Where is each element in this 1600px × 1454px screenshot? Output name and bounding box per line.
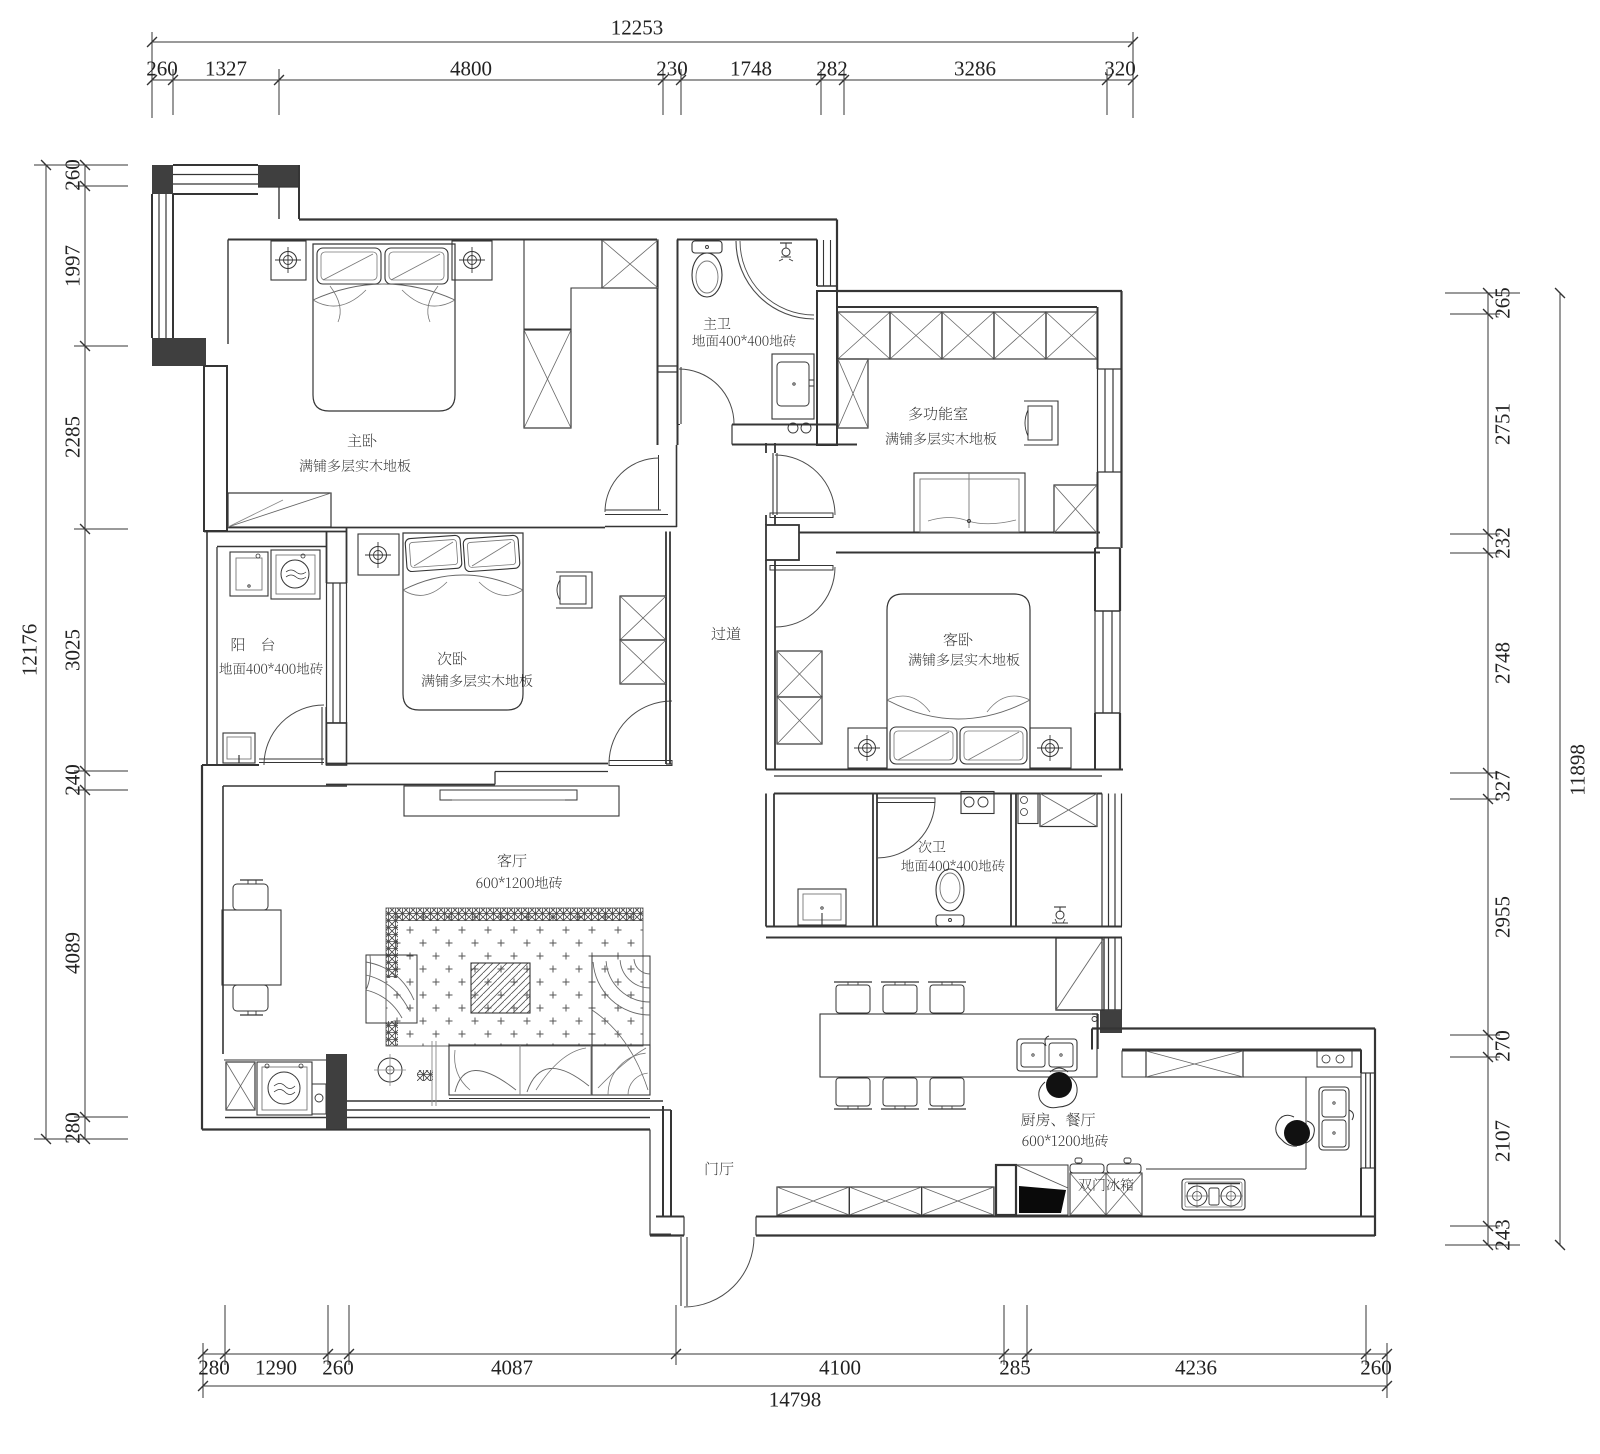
svg-text:12176: 12176 bbox=[18, 624, 42, 677]
svg-text:260: 260 bbox=[146, 57, 178, 81]
svg-text:1327: 1327 bbox=[205, 57, 247, 81]
svg-text:2748: 2748 bbox=[1491, 642, 1515, 684]
svg-text:243: 243 bbox=[1491, 1219, 1515, 1251]
svg-text:3286: 3286 bbox=[954, 57, 996, 81]
svg-text:2955: 2955 bbox=[1491, 896, 1515, 938]
svg-text:1997: 1997 bbox=[61, 245, 85, 287]
svg-text:265: 265 bbox=[1491, 287, 1515, 319]
svg-text:260: 260 bbox=[322, 1356, 354, 1380]
svg-text:280: 280 bbox=[198, 1356, 230, 1380]
svg-text:4087: 4087 bbox=[491, 1356, 533, 1380]
svg-text:270: 270 bbox=[1491, 1030, 1515, 1062]
svg-text:260: 260 bbox=[1360, 1356, 1392, 1380]
svg-text:230: 230 bbox=[656, 57, 688, 81]
svg-text:280: 280 bbox=[61, 1112, 85, 1144]
svg-text:232: 232 bbox=[1491, 527, 1515, 559]
svg-text:2751: 2751 bbox=[1491, 403, 1515, 445]
svg-text:1290: 1290 bbox=[255, 1356, 297, 1380]
svg-text:4800: 4800 bbox=[450, 57, 492, 81]
svg-text:4089: 4089 bbox=[61, 932, 85, 974]
svg-text:1748: 1748 bbox=[730, 57, 772, 81]
svg-text:11898: 11898 bbox=[1566, 744, 1590, 796]
svg-text:240: 240 bbox=[61, 764, 85, 796]
svg-text:2285: 2285 bbox=[61, 416, 85, 458]
svg-text:260: 260 bbox=[61, 159, 85, 191]
svg-text:327: 327 bbox=[1491, 770, 1515, 802]
svg-text:3025: 3025 bbox=[61, 629, 85, 671]
svg-text:12253: 12253 bbox=[611, 16, 664, 40]
svg-text:4100: 4100 bbox=[819, 1356, 861, 1380]
svg-text:285: 285 bbox=[999, 1356, 1031, 1380]
svg-text:282: 282 bbox=[816, 57, 848, 81]
svg-text:320: 320 bbox=[1104, 57, 1136, 81]
svg-text:4236: 4236 bbox=[1175, 1356, 1217, 1380]
svg-text:2107: 2107 bbox=[1491, 1120, 1515, 1162]
svg-text:14798: 14798 bbox=[769, 1388, 822, 1412]
